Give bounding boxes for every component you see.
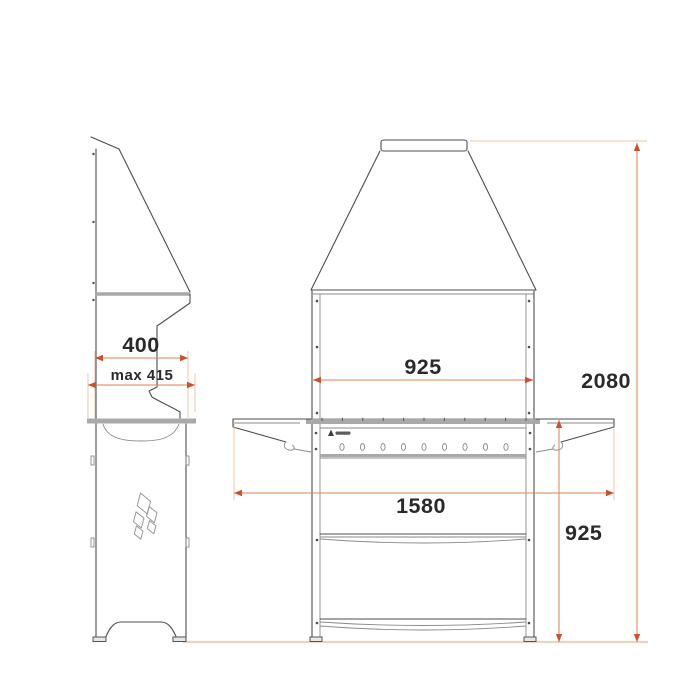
bolt-dot — [315, 448, 318, 451]
bolt-dot — [529, 432, 532, 435]
dimension-label-2080: 2080 — [581, 369, 631, 393]
bolt-dot — [528, 346, 531, 349]
middle-shelf — [316, 534, 531, 543]
dimension-label-925-height: 925 — [565, 521, 602, 545]
bolt-dot — [315, 432, 318, 435]
vent-slot — [360, 444, 364, 451]
vent-slot — [422, 444, 426, 451]
dimension-grill-height: 925 — [556, 420, 603, 642]
vent-slot — [401, 444, 405, 451]
side-tab — [91, 456, 94, 465]
grill-dimension-drawing: 400 max 415 925 1580 — [0, 0, 700, 700]
side-foot-left — [93, 637, 106, 642]
bolt-dot — [529, 448, 532, 451]
dimension-label-400: 400 — [122, 333, 159, 357]
bolt-dot — [316, 412, 319, 415]
technical-drawing-page: 400 max 415 925 1580 — [0, 0, 700, 700]
dimension-label-925-width: 925 — [404, 355, 441, 379]
bolt-dot — [316, 346, 319, 349]
right-shelf — [536, 419, 614, 452]
dimension-annotations: 400 max 415 925 1580 — [88, 141, 647, 642]
vent-slot — [381, 444, 385, 451]
firebox-front — [320, 428, 526, 458]
dimension-grill-width: 925 — [313, 355, 533, 383]
side-view — [87, 137, 196, 642]
dimension-label-max-415: max 415 — [111, 367, 174, 384]
front-hood-right-slope — [468, 151, 536, 290]
bolt-dot — [92, 153, 94, 155]
brand-logo-icon — [328, 430, 351, 437]
side-chimney-slope — [119, 149, 190, 292]
diamond-flame-logo-icon — [123, 490, 163, 540]
bolt-dot — [316, 300, 319, 303]
vent-slot — [483, 444, 487, 451]
front-foot-left — [310, 637, 322, 642]
side-foot-right — [173, 637, 186, 642]
vent-slot — [442, 444, 446, 451]
side-tab — [186, 456, 189, 465]
dimension-overall-width: 1580 — [234, 421, 614, 518]
bottom-shelf — [316, 619, 531, 630]
side-chimney-cap-edge — [91, 137, 119, 149]
bolt-dot — [92, 221, 94, 223]
vent-slot — [463, 444, 467, 451]
side-firebox-bowl — [103, 424, 179, 441]
bolt-dot — [92, 282, 94, 284]
bolt-dot — [528, 300, 531, 303]
front-hood-left-slope — [311, 151, 380, 290]
front-foot-right — [524, 637, 536, 642]
bolt-dot — [528, 412, 531, 415]
side-tab — [186, 538, 189, 547]
front-view — [233, 140, 614, 642]
right-shelf-hook — [553, 442, 563, 450]
left-shelf-hook — [284, 442, 294, 450]
side-tab — [91, 538, 94, 547]
dimension-side-width-max: max 415 — [88, 367, 195, 418]
side-leg-arch — [104, 622, 178, 641]
left-shelf — [233, 419, 311, 452]
dimension-label-1580: 1580 — [396, 494, 446, 518]
vent-slot — [340, 444, 344, 451]
skewer-rail — [306, 418, 540, 422]
vent-slot — [504, 444, 508, 451]
front-chimney-cap — [381, 140, 467, 151]
bolt-dot — [92, 299, 94, 301]
